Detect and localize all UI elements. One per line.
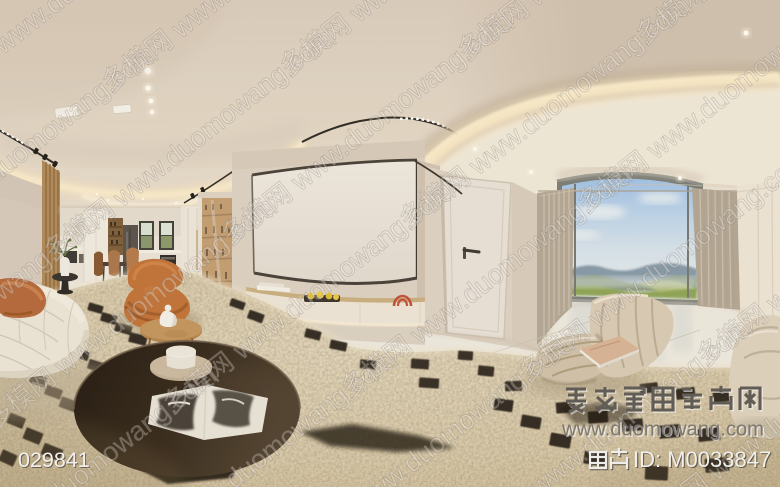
svg-text:www.duomowang.com: www.duomowang.com	[561, 419, 764, 441]
svg-text:029841: 029841	[18, 448, 90, 472]
svg-text:ID: M0033847: ID: M0033847	[633, 447, 771, 472]
